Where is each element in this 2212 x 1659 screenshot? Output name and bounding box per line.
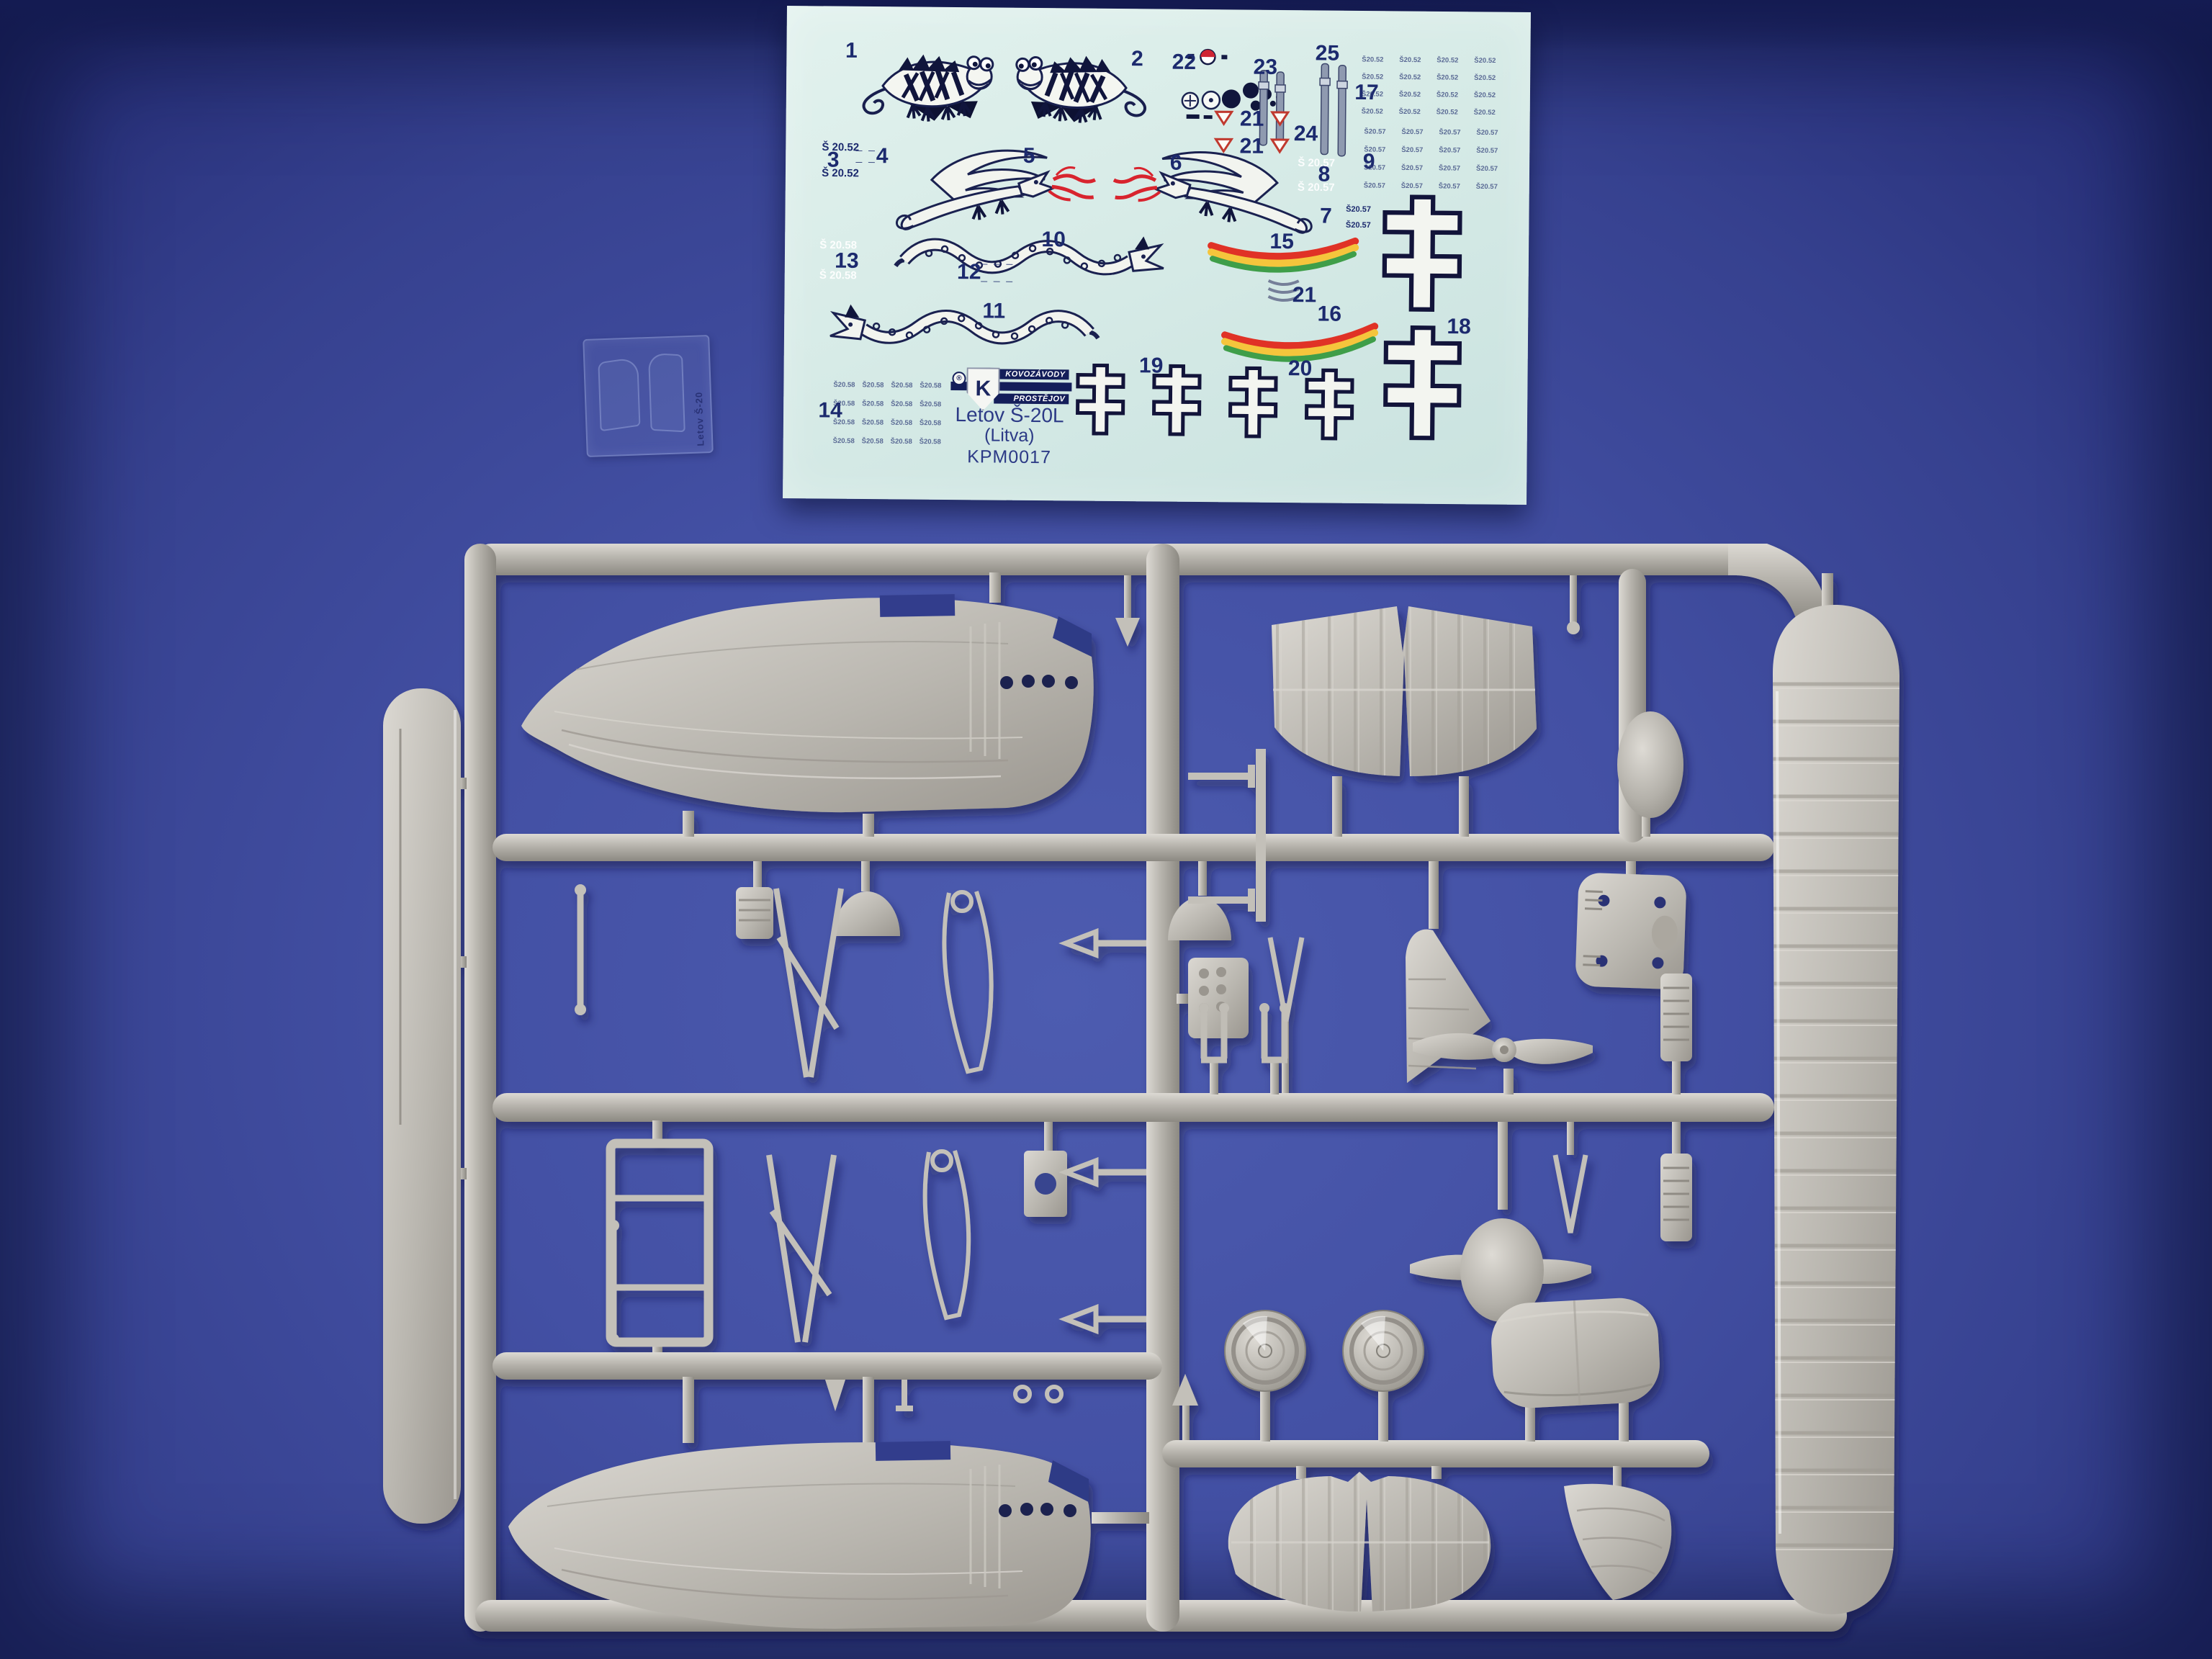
wing-panel-corrugated bbox=[1768, 605, 1905, 1614]
decal-label: 21 bbox=[1292, 283, 1317, 307]
decal-grid-mark: Š20.57 bbox=[1476, 147, 1498, 155]
plate-with-hole bbox=[1024, 1151, 1067, 1217]
decal-grid-mark: Š20.52 bbox=[1399, 73, 1421, 81]
decal-grid-mark: Š20.52 bbox=[1362, 90, 1383, 98]
decal-grid-mark: Š20.58 bbox=[862, 400, 884, 408]
decal-grid-mark: Š20.58 bbox=[891, 382, 912, 390]
decal-label: Š 20.52 bbox=[822, 167, 859, 179]
disc-part bbox=[1617, 711, 1683, 818]
decal-grid-mark: Š20.58 bbox=[891, 438, 912, 446]
decal-grid-mark: Š20.52 bbox=[1362, 73, 1383, 81]
engine-block bbox=[1177, 958, 1249, 1038]
decal-grid-mark: Š20.58 bbox=[891, 419, 912, 427]
fuselage-half-upper bbox=[521, 594, 1094, 812]
decal-grid-mark: Š20.52 bbox=[1399, 56, 1421, 64]
decal-grid-mark: Š20.57 bbox=[1364, 181, 1385, 189]
decal-grid-mark: Š20.58 bbox=[920, 382, 941, 390]
decal-label: 4 bbox=[876, 144, 889, 168]
decal-label: 24 bbox=[1294, 122, 1318, 146]
decal-label: Š 20.52 bbox=[822, 141, 859, 153]
decal-grid-mark: Š20.58 bbox=[833, 400, 855, 408]
decal-grid-mark: Š20.52 bbox=[1474, 109, 1496, 117]
windscreen-dome bbox=[834, 891, 900, 936]
decal-number-labels: 1222232524212117987345610131211152116181… bbox=[783, 6, 1531, 505]
decal-label: 6 bbox=[1170, 151, 1182, 176]
decal-grid-mark: Š20.52 bbox=[1437, 73, 1458, 81]
decal-label: 5 bbox=[1023, 144, 1035, 168]
decal-grid-mark: Š20.58 bbox=[862, 437, 884, 445]
decal-label: 23 bbox=[1253, 55, 1277, 80]
decal-grid-mark: Š20.57 bbox=[1476, 165, 1498, 173]
decal-label: 18 bbox=[1447, 315, 1471, 339]
fin-rudder bbox=[1406, 930, 1491, 1083]
decal-grid-mark: Š20.57 bbox=[1364, 128, 1385, 136]
decal-label: Š20.57 bbox=[1346, 221, 1371, 230]
clear-windscreen-b bbox=[648, 353, 685, 432]
engine-cowling-front bbox=[1575, 872, 1686, 989]
decal-grid-mark: Š20.52 bbox=[1362, 107, 1383, 115]
decal-grid-mark: Š20.57 bbox=[1476, 129, 1498, 137]
decal-label: 11 bbox=[982, 299, 1005, 323]
decal-label: 16 bbox=[1317, 302, 1341, 326]
model-kit-photo: 1222232524212117987345610131211152116181… bbox=[0, 0, 2212, 1659]
kit-title: Letov Š-20L bbox=[946, 403, 1073, 428]
decal-grid-mark: Š20.52 bbox=[1399, 108, 1421, 116]
logo-line-1: KOVOZÁVODY bbox=[994, 369, 1069, 380]
decal-grid-mark: Š20.57 bbox=[1401, 128, 1423, 136]
decal-grid-mark: Š20.52 bbox=[1474, 74, 1496, 82]
decal-label: 7 bbox=[1320, 204, 1332, 228]
decal-label: Š 20.57 bbox=[1298, 181, 1335, 194]
decal-grid-mark: Š20.57 bbox=[1439, 164, 1460, 172]
tailplane-lower bbox=[1224, 1469, 1498, 1613]
clear-sprue-part: Letov Š-20 bbox=[583, 335, 714, 457]
decal-grid-mark: Š20.58 bbox=[891, 400, 912, 408]
decal-grid-mark: Š20.58 bbox=[920, 419, 941, 427]
decal-label: Š20.57 bbox=[1346, 205, 1371, 214]
arrow-strut bbox=[1066, 932, 1146, 1331]
decal-label: 20 bbox=[1288, 356, 1313, 381]
decal-grid-mark: Š20.52 bbox=[1437, 91, 1458, 99]
decal-label: — — bbox=[855, 158, 877, 166]
decal-grid-mark: Š20.57 bbox=[1476, 183, 1498, 191]
decal-grid-mark: Š20.52 bbox=[1437, 108, 1458, 116]
decal-grid-mark: Š20.57 bbox=[1364, 163, 1385, 171]
kit-subtitle: (Litva) bbox=[946, 425, 1073, 447]
decal-label: Š 20.58 bbox=[819, 239, 857, 251]
decal-label: Š 20.58 bbox=[819, 269, 857, 282]
decal-grid-mark: Š20.58 bbox=[833, 437, 855, 445]
logo-line-2: PROSTĚJOV bbox=[994, 394, 1069, 405]
decal-grid-mark: Š20.57 bbox=[1401, 182, 1423, 190]
decal-grid-mark: Š20.57 bbox=[1364, 145, 1385, 153]
decal-label: 22 bbox=[1172, 50, 1196, 75]
decal-label: — — — bbox=[981, 260, 1015, 267]
propeller-two-blade bbox=[1413, 1033, 1593, 1064]
decal-sheet: 1222232524212117987345610131211152116181… bbox=[783, 6, 1531, 505]
decal-grid-mark: Š20.58 bbox=[920, 400, 941, 408]
fin-curved bbox=[1564, 1484, 1671, 1600]
decal-grid-mark: Š20.52 bbox=[1437, 56, 1458, 64]
wheel bbox=[1225, 1310, 1305, 1391]
engine-cowl-cylinder bbox=[1489, 1296, 1661, 1410]
clear-windscreen-a bbox=[598, 357, 640, 432]
decal-grid-mark: Š20.52 bbox=[1474, 57, 1496, 65]
wing-panel-left bbox=[383, 688, 461, 1524]
decal-label: 15 bbox=[1269, 230, 1294, 254]
tailplane bbox=[1267, 605, 1541, 778]
decal-grid-mark: Š20.57 bbox=[1439, 182, 1460, 190]
decal-label: 21 bbox=[1239, 134, 1264, 158]
decal-label: 25 bbox=[1316, 41, 1340, 66]
decal-label: 2 bbox=[1131, 47, 1143, 71]
wheel-2 bbox=[1343, 1310, 1424, 1391]
decal-label: 1 bbox=[845, 39, 858, 63]
decal-grid-mark: Š20.57 bbox=[1401, 164, 1423, 172]
decal-grid-mark: Š20.58 bbox=[833, 418, 855, 426]
logo-emblem: ® bbox=[952, 372, 966, 385]
decal-label: 10 bbox=[1041, 228, 1066, 252]
clear-part-marking: Letov Š-20 bbox=[692, 345, 706, 446]
decal-grid-mark: Š20.52 bbox=[1399, 91, 1421, 99]
decal-grid-mark: Š20.58 bbox=[862, 418, 884, 426]
decal-grid-mark: Š20.57 bbox=[1439, 146, 1460, 154]
decal-label: Š 20.57 bbox=[1298, 157, 1335, 169]
decal-grid-mark: Š20.58 bbox=[833, 381, 855, 389]
decal-grid-mark: Š20.57 bbox=[1439, 128, 1460, 136]
decal-label: — — bbox=[855, 147, 877, 154]
decal-grid-mark: Š20.57 bbox=[1401, 146, 1423, 154]
decal-grid-mark: Š20.58 bbox=[862, 381, 884, 389]
decal-grid-mark: Š20.52 bbox=[1362, 55, 1383, 63]
small-cylinder-part bbox=[736, 887, 773, 939]
decal-label: 12 bbox=[957, 260, 981, 284]
decal-grid-mark: Š20.52 bbox=[1474, 91, 1496, 99]
decal-label: 21 bbox=[1240, 107, 1264, 131]
decal-label: — — — bbox=[981, 277, 1015, 284]
kit-code: KPM0017 bbox=[945, 446, 1072, 469]
decal-grid-mark: Š20.58 bbox=[920, 438, 941, 446]
decal-label: 19 bbox=[1139, 354, 1164, 378]
